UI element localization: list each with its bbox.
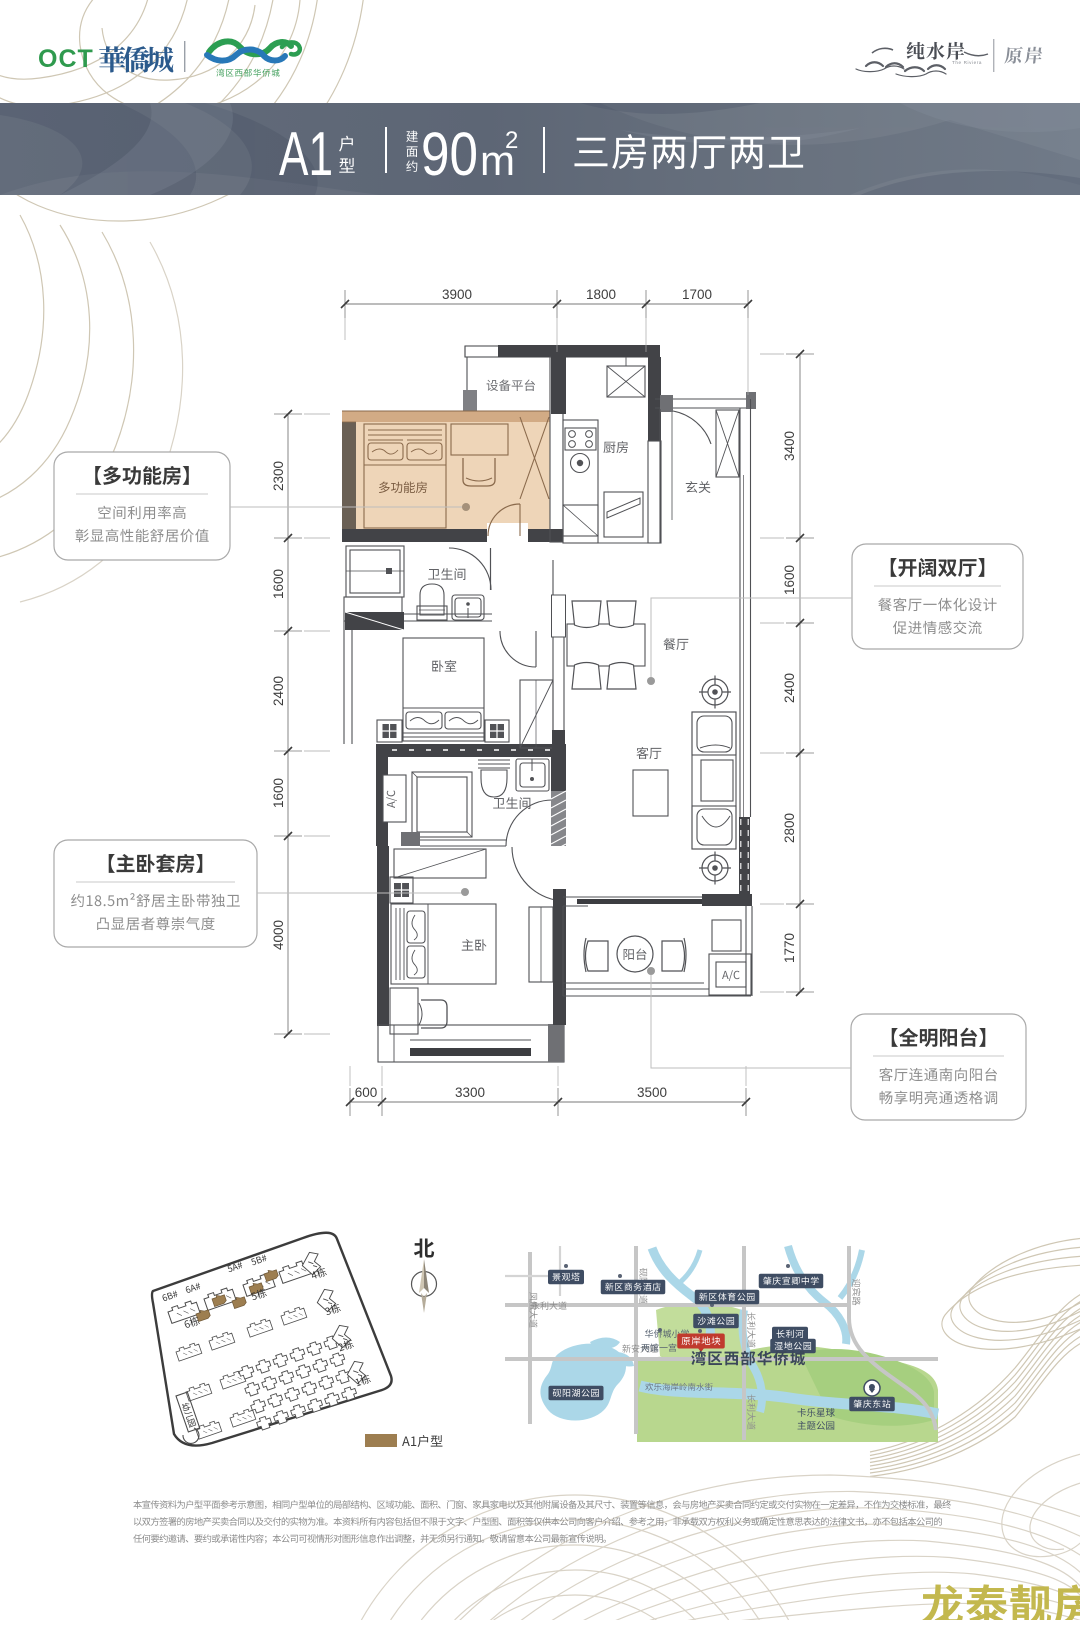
svg-text:1600: 1600	[271, 778, 286, 808]
svg-text:2400: 2400	[782, 673, 797, 703]
svg-text:The Riviera: The Riviera	[952, 60, 982, 65]
svg-text:1800: 1800	[586, 287, 616, 302]
svg-text:2400: 2400	[271, 676, 286, 706]
svg-text:1600: 1600	[271, 569, 286, 599]
svg-text:1770: 1770	[782, 933, 797, 963]
svg-text:3900: 3900	[442, 287, 472, 302]
svg-text:2800: 2800	[782, 813, 797, 843]
svg-text:2: 2	[505, 127, 518, 154]
svg-text:2300: 2300	[271, 461, 286, 491]
svg-text:1600: 1600	[782, 565, 797, 595]
svg-text:600: 600	[355, 1085, 378, 1100]
svg-text:3400: 3400	[782, 431, 797, 461]
svg-text:A1: A1	[279, 120, 333, 189]
svg-text:OCT: OCT	[38, 45, 94, 73]
svg-text:3300: 3300	[455, 1085, 485, 1100]
svg-text:3500: 3500	[637, 1085, 667, 1100]
svg-text:4000: 4000	[271, 920, 286, 950]
svg-text:1700: 1700	[682, 287, 712, 302]
svg-text:90: 90	[421, 120, 478, 188]
